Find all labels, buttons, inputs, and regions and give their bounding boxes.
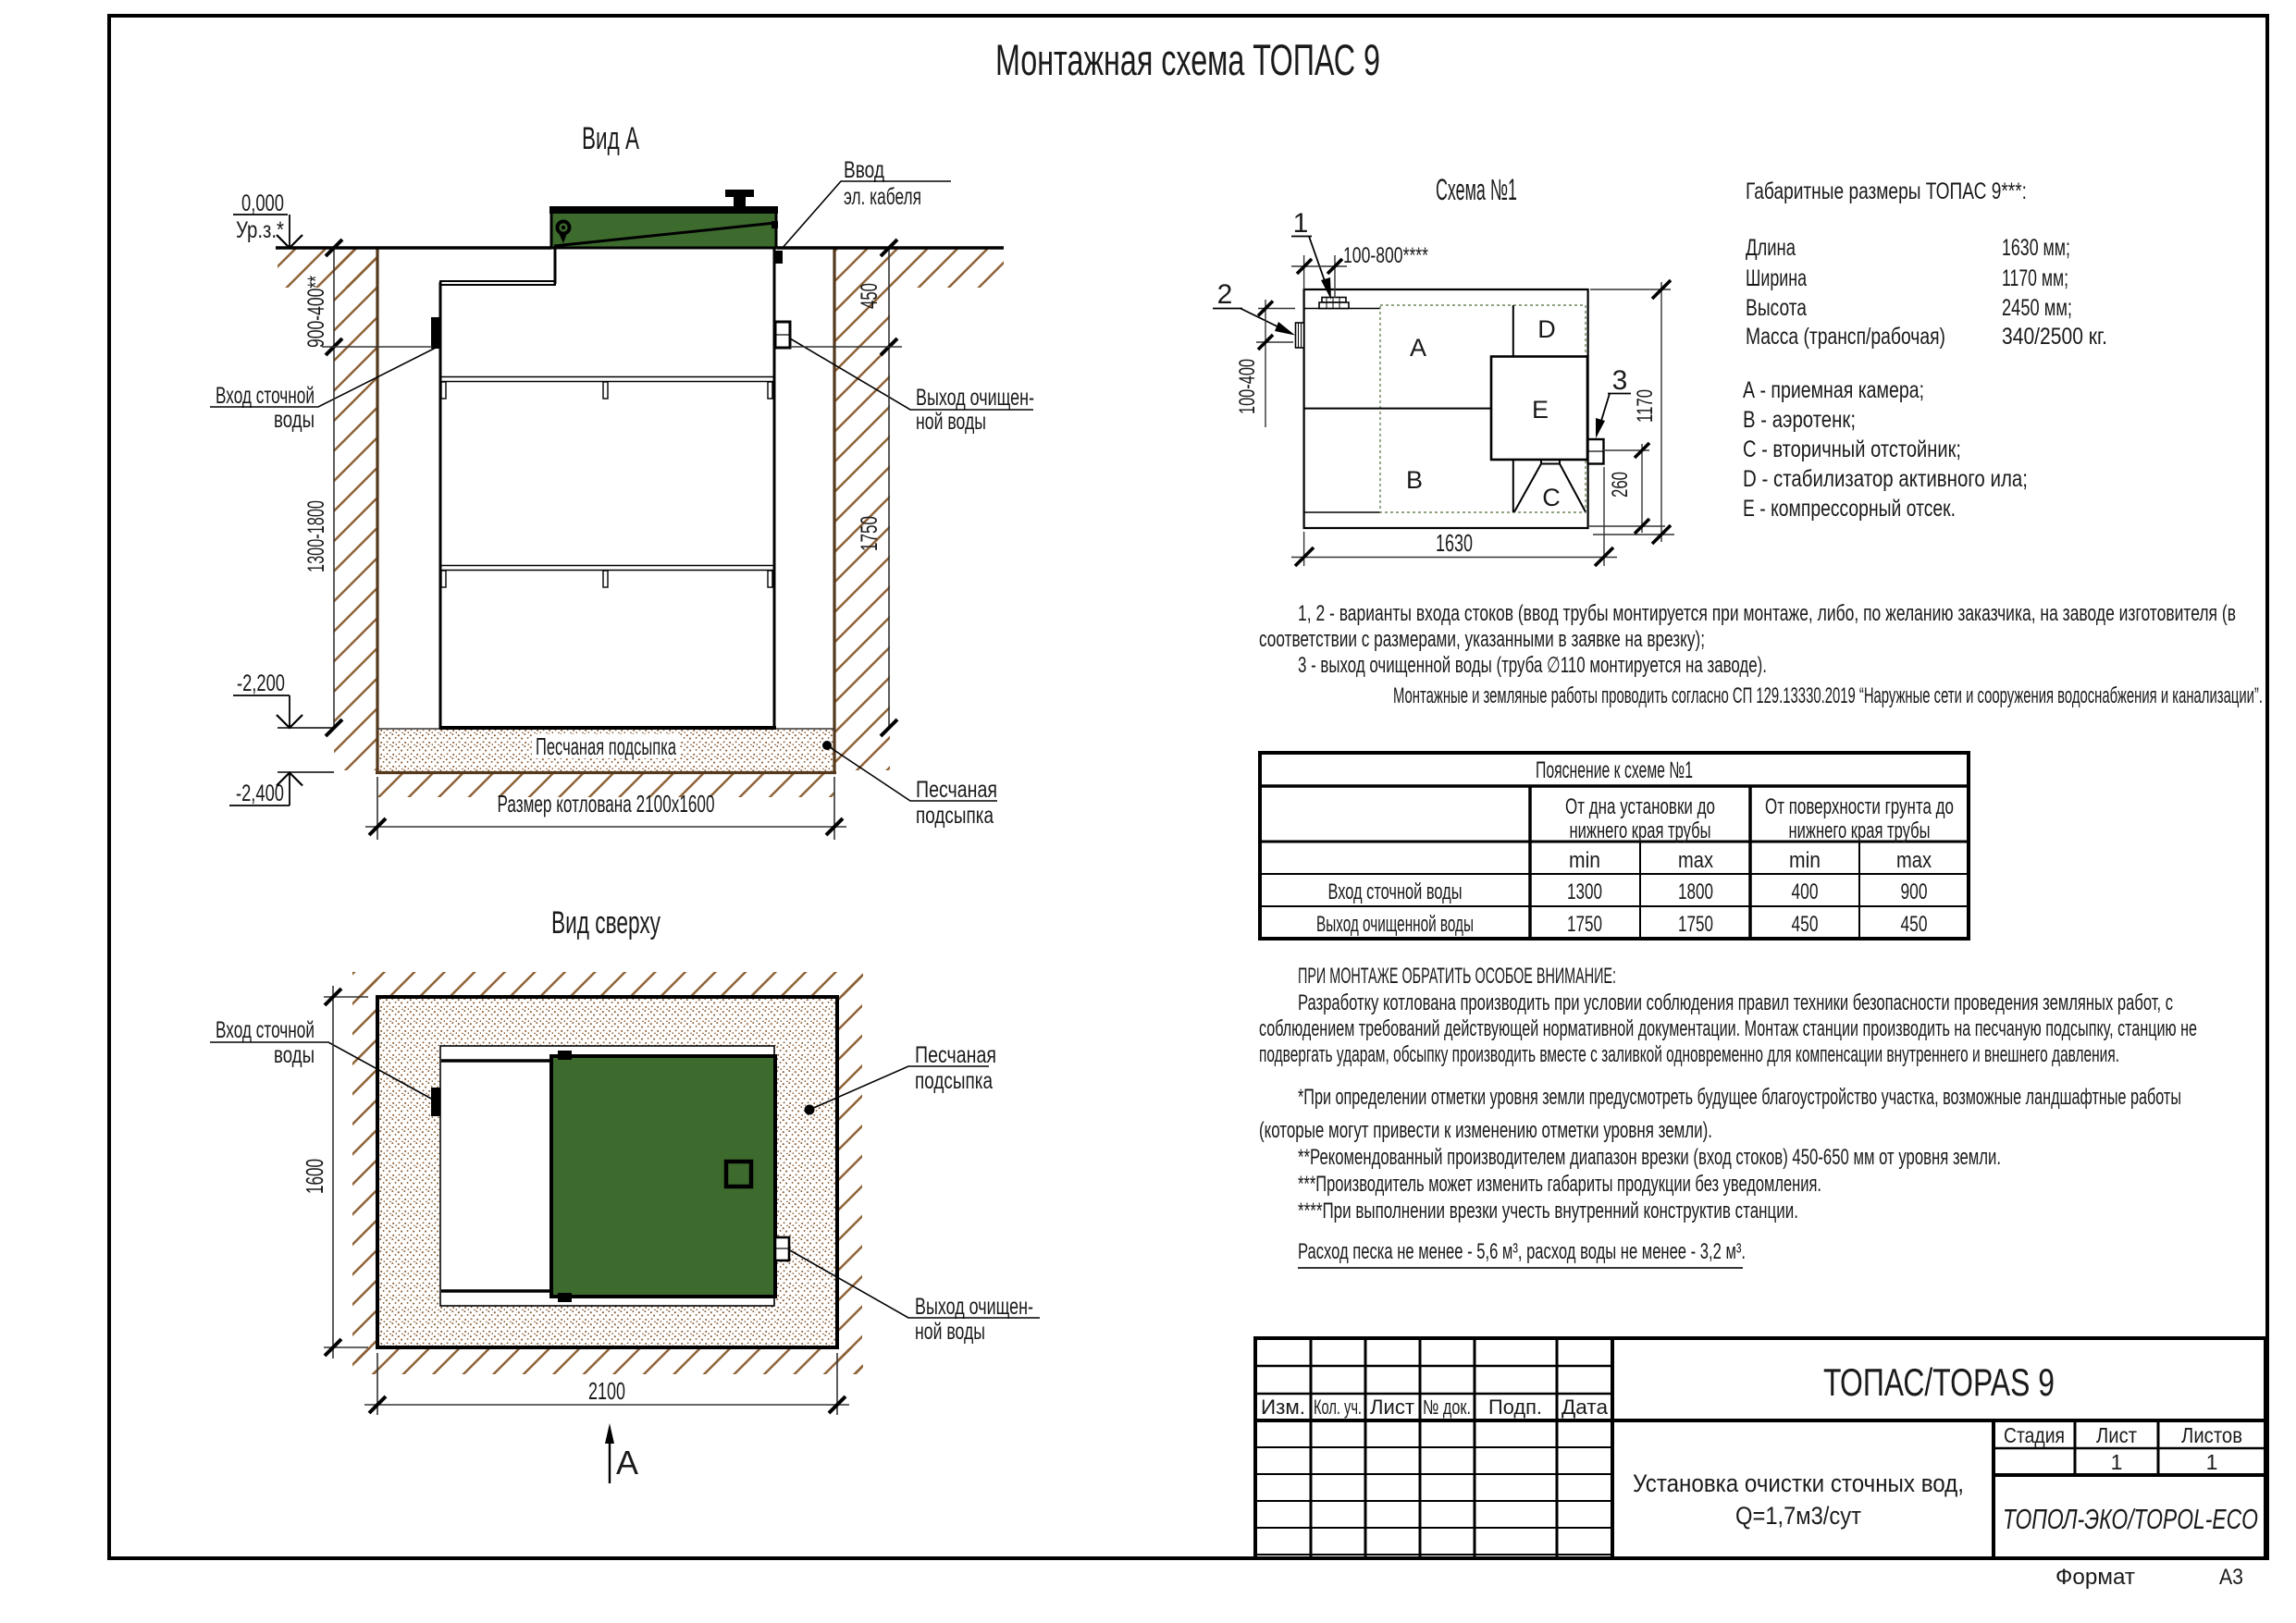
svg-text:900-400**: 900-400**: [303, 276, 329, 348]
svg-text:Размер котлована 2100х1600: Размер котлована 2100х1600: [498, 790, 715, 818]
svg-text:Дата: Дата: [1562, 1396, 1609, 1419]
svg-text:1600: 1600: [301, 1159, 328, 1194]
svg-text:Разработку котлована производи: Разработку котлована производить при усл…: [1298, 990, 2173, 1015]
svg-text:1: 1: [1293, 208, 1309, 239]
svg-text:А3: А3: [2219, 1565, 2243, 1590]
svg-text:C: C: [1542, 484, 1561, 511]
svg-text:1750: 1750: [1567, 912, 1602, 937]
svg-text:Лист: Лист: [2096, 1423, 2137, 1447]
svg-text:Монтажная схема ТОПАС 9: Монтажная схема ТОПАС 9: [995, 35, 1380, 84]
svg-text:1750: 1750: [857, 516, 883, 551]
svg-text:min: min: [1789, 848, 1821, 873]
svg-text:Длина: Длина: [1746, 235, 1796, 261]
svg-text:ПРИ МОНТАЖЕ ОБРАТИТЬ ОСОБОЕ ВН: ПРИ МОНТАЖЕ ОБРАТИТЬ ОСОБОЕ ВНИМАНИЕ:: [1298, 964, 1616, 989]
svg-text:A: A: [1410, 334, 1426, 362]
svg-text:соблюдением требований действу: соблюдением требований действующей норма…: [1259, 1016, 2197, 1041]
svg-text:2100: 2100: [588, 1377, 625, 1405]
svg-text:ТОПОЛ-ЭКО/TOPOL-ECO: ТОПОЛ-ЭКО/TOPOL-ECO: [2003, 1503, 2258, 1535]
svg-text:E: E: [1532, 396, 1549, 424]
svg-text:Лист: Лист: [1370, 1396, 1414, 1419]
svg-text:**Рекомендованный производител: **Рекомендованный производителем диапазо…: [1298, 1145, 2001, 1170]
svg-text:260: 260: [1608, 472, 1633, 498]
svg-text:min: min: [1569, 848, 1600, 873]
svg-text:С - вторичный отстойник;: С - вторичный отстойник;: [1743, 436, 1961, 462]
svg-text:Формат: Формат: [2055, 1565, 2135, 1590]
svg-text:воды: воды: [274, 1042, 315, 1068]
svg-text:900: 900: [1901, 879, 1928, 904]
svg-text:воды: воды: [274, 407, 315, 433]
svg-text:Изм.: Изм.: [1261, 1396, 1305, 1419]
svg-text:Выход очищен-: Выход очищен-: [916, 385, 1034, 411]
svg-text:1800: 1800: [1678, 879, 1713, 904]
svg-text:Пояснение к схеме №1: Пояснение к схеме №1: [1536, 757, 1693, 783]
svg-text:Вид сверху: Вид сверху: [551, 905, 660, 941]
svg-text:Подп.: Подп.: [1488, 1396, 1542, 1419]
svg-text:450: 450: [1901, 912, 1928, 937]
svg-text:1: 1: [2206, 1450, 2218, 1474]
svg-text:2450 мм;: 2450 мм;: [2002, 295, 2072, 321]
svg-text:1300: 1300: [1567, 879, 1602, 904]
svg-text:Кол. уч.: Кол. уч.: [1314, 1396, 1362, 1419]
svg-text:*При определении отметки уровн: *При определении отметки уровня земли пр…: [1298, 1085, 2181, 1110]
svg-text:Песчаная: Песчаная: [915, 1042, 996, 1068]
svg-text:Схема №1: Схема №1: [1436, 173, 1517, 206]
svg-text:Выход очищенной воды: Выход очищенной воды: [1316, 912, 1474, 937]
svg-text:450: 450: [857, 283, 883, 309]
svg-text:2: 2: [1217, 279, 1233, 310]
svg-text:Выход очищен-: Выход очищен-: [915, 1294, 1033, 1320]
svg-text:Вид А: Вид А: [582, 121, 639, 156]
svg-text:Габаритные размеры ТОПАС 9***:: Габаритные размеры ТОПАС 9***:: [1746, 178, 2027, 204]
svg-text:max: max: [1896, 848, 1932, 873]
svg-text:Е - компрессорный отсек.: Е - компрессорный отсек.: [1743, 496, 1956, 522]
svg-text:Вход сточной воды: Вход сточной воды: [1328, 879, 1463, 904]
svg-text:подсыпка: подсыпка: [915, 1068, 993, 1094]
svg-text:Песчаная подсыпка: Песчаная подсыпка: [536, 732, 676, 760]
svg-text:340/2500 кг.: 340/2500 кг.: [2002, 324, 2107, 350]
svg-text:0,000: 0,000: [241, 191, 284, 216]
svg-text:В - аэротенк;: В - аэротенк;: [1743, 407, 1856, 433]
svg-text:Песчаная: Песчаная: [916, 777, 997, 803]
svg-text:100-400: 100-400: [1235, 359, 1260, 414]
svg-text:Ввод: Ввод: [844, 157, 884, 183]
svg-text:От дна установки до: От дна установки до: [1565, 794, 1715, 819]
svg-text:****При выполнении врезки учес: ****При выполнении врезки учесть внутрен…: [1298, 1199, 1798, 1223]
svg-text:1, 2 - варианты входа стоков: 1, 2 - варианты входа стоков (ввод трубы…: [1298, 601, 2236, 626]
svg-text:(которые могут привести к изме: (которые могут привести к изменению отме…: [1259, 1118, 1712, 1143]
svg-text:ной воды: ной воды: [915, 1319, 985, 1345]
svg-text:Расход песка не менее - 5,6 м³: Расход песка не менее - 5,6 м³, расход в…: [1298, 1239, 1746, 1264]
svg-text:Ур.з.*: Ур.з.*: [236, 217, 284, 243]
svg-text:1630: 1630: [1436, 529, 1473, 557]
svg-text:Установка очистки сточных вод,: Установка очистки сточных вод,: [1633, 1469, 1964, 1497]
svg-text:Масса (трансп/рабочая): Масса (трансп/рабочая): [1746, 324, 1945, 350]
svg-text:№ док.: № док.: [1423, 1396, 1471, 1419]
svg-text:ной воды: ной воды: [916, 409, 986, 435]
svg-text:B: B: [1406, 466, 1423, 494]
svg-text:Вход сточной: Вход сточной: [216, 383, 315, 409]
svg-text:Ширина: Ширина: [1746, 265, 1807, 291]
svg-text:Монтажные и земляные работы пр: Монтажные и земляные работы проводить со…: [1393, 683, 2263, 708]
svg-text:1630 мм;: 1630 мм;: [2002, 235, 2070, 261]
svg-text:3: 3: [1612, 365, 1628, 396]
svg-text:max: max: [1678, 848, 1713, 873]
svg-text:100-800****: 100-800****: [1343, 243, 1428, 268]
svg-text:нижнего края трубы: нижнего края трубы: [1789, 818, 1931, 843]
svg-text:400: 400: [1792, 879, 1819, 904]
svg-text:D - стабилизатор активного ила: D - стабилизатор активного ила;: [1743, 466, 2028, 492]
svg-text:1170 мм;: 1170 мм;: [2002, 265, 2068, 291]
svg-text:Q=1,7м3/сут: Q=1,7м3/сут: [1735, 1502, 1861, 1530]
svg-text:От поверхности грунта до: От поверхности грунта до: [1765, 794, 1954, 819]
svg-text:-2,200: -2,200: [237, 670, 285, 696]
svg-text:подсыпка: подсыпка: [916, 803, 994, 829]
svg-text:А - приемная камера;: А - приемная камера;: [1743, 377, 1924, 403]
svg-text:эл. кабеля: эл. кабеля: [844, 184, 921, 210]
svg-text:1170: 1170: [1633, 389, 1658, 423]
svg-text:1750: 1750: [1678, 912, 1713, 937]
svg-text:нижнего края трубы: нижнего края трубы: [1570, 818, 1711, 843]
svg-text:ТОПАС/TOPAS 9: ТОПАС/TOPAS 9: [1823, 1360, 2055, 1404]
svg-text:А: А: [616, 1444, 638, 1482]
svg-text:450: 450: [1792, 912, 1819, 937]
svg-text:D: D: [1537, 315, 1556, 343]
svg-text:Листов: Листов: [2181, 1423, 2242, 1447]
svg-text:1300-1800: 1300-1800: [303, 500, 329, 572]
svg-text:подвергать ударам, обсыпку про: подвергать ударам, обсыпку производить в…: [1259, 1042, 2119, 1067]
svg-text:1: 1: [2111, 1450, 2123, 1474]
svg-text:Высота: Высота: [1746, 295, 1807, 321]
svg-text:Вход сточной: Вход сточной: [216, 1017, 315, 1043]
svg-text:3 - выход очищенной воды (труб: 3 - выход очищенной воды (труба ∅110 мон…: [1298, 653, 1767, 678]
svg-text:соответствии с размерами, указ: соответствии с размерами, указанными в з…: [1259, 627, 1705, 652]
svg-text:Стадия: Стадия: [2004, 1423, 2065, 1447]
svg-text:***Производитель может изменит: ***Производитель может изменить габариты…: [1298, 1172, 1821, 1197]
